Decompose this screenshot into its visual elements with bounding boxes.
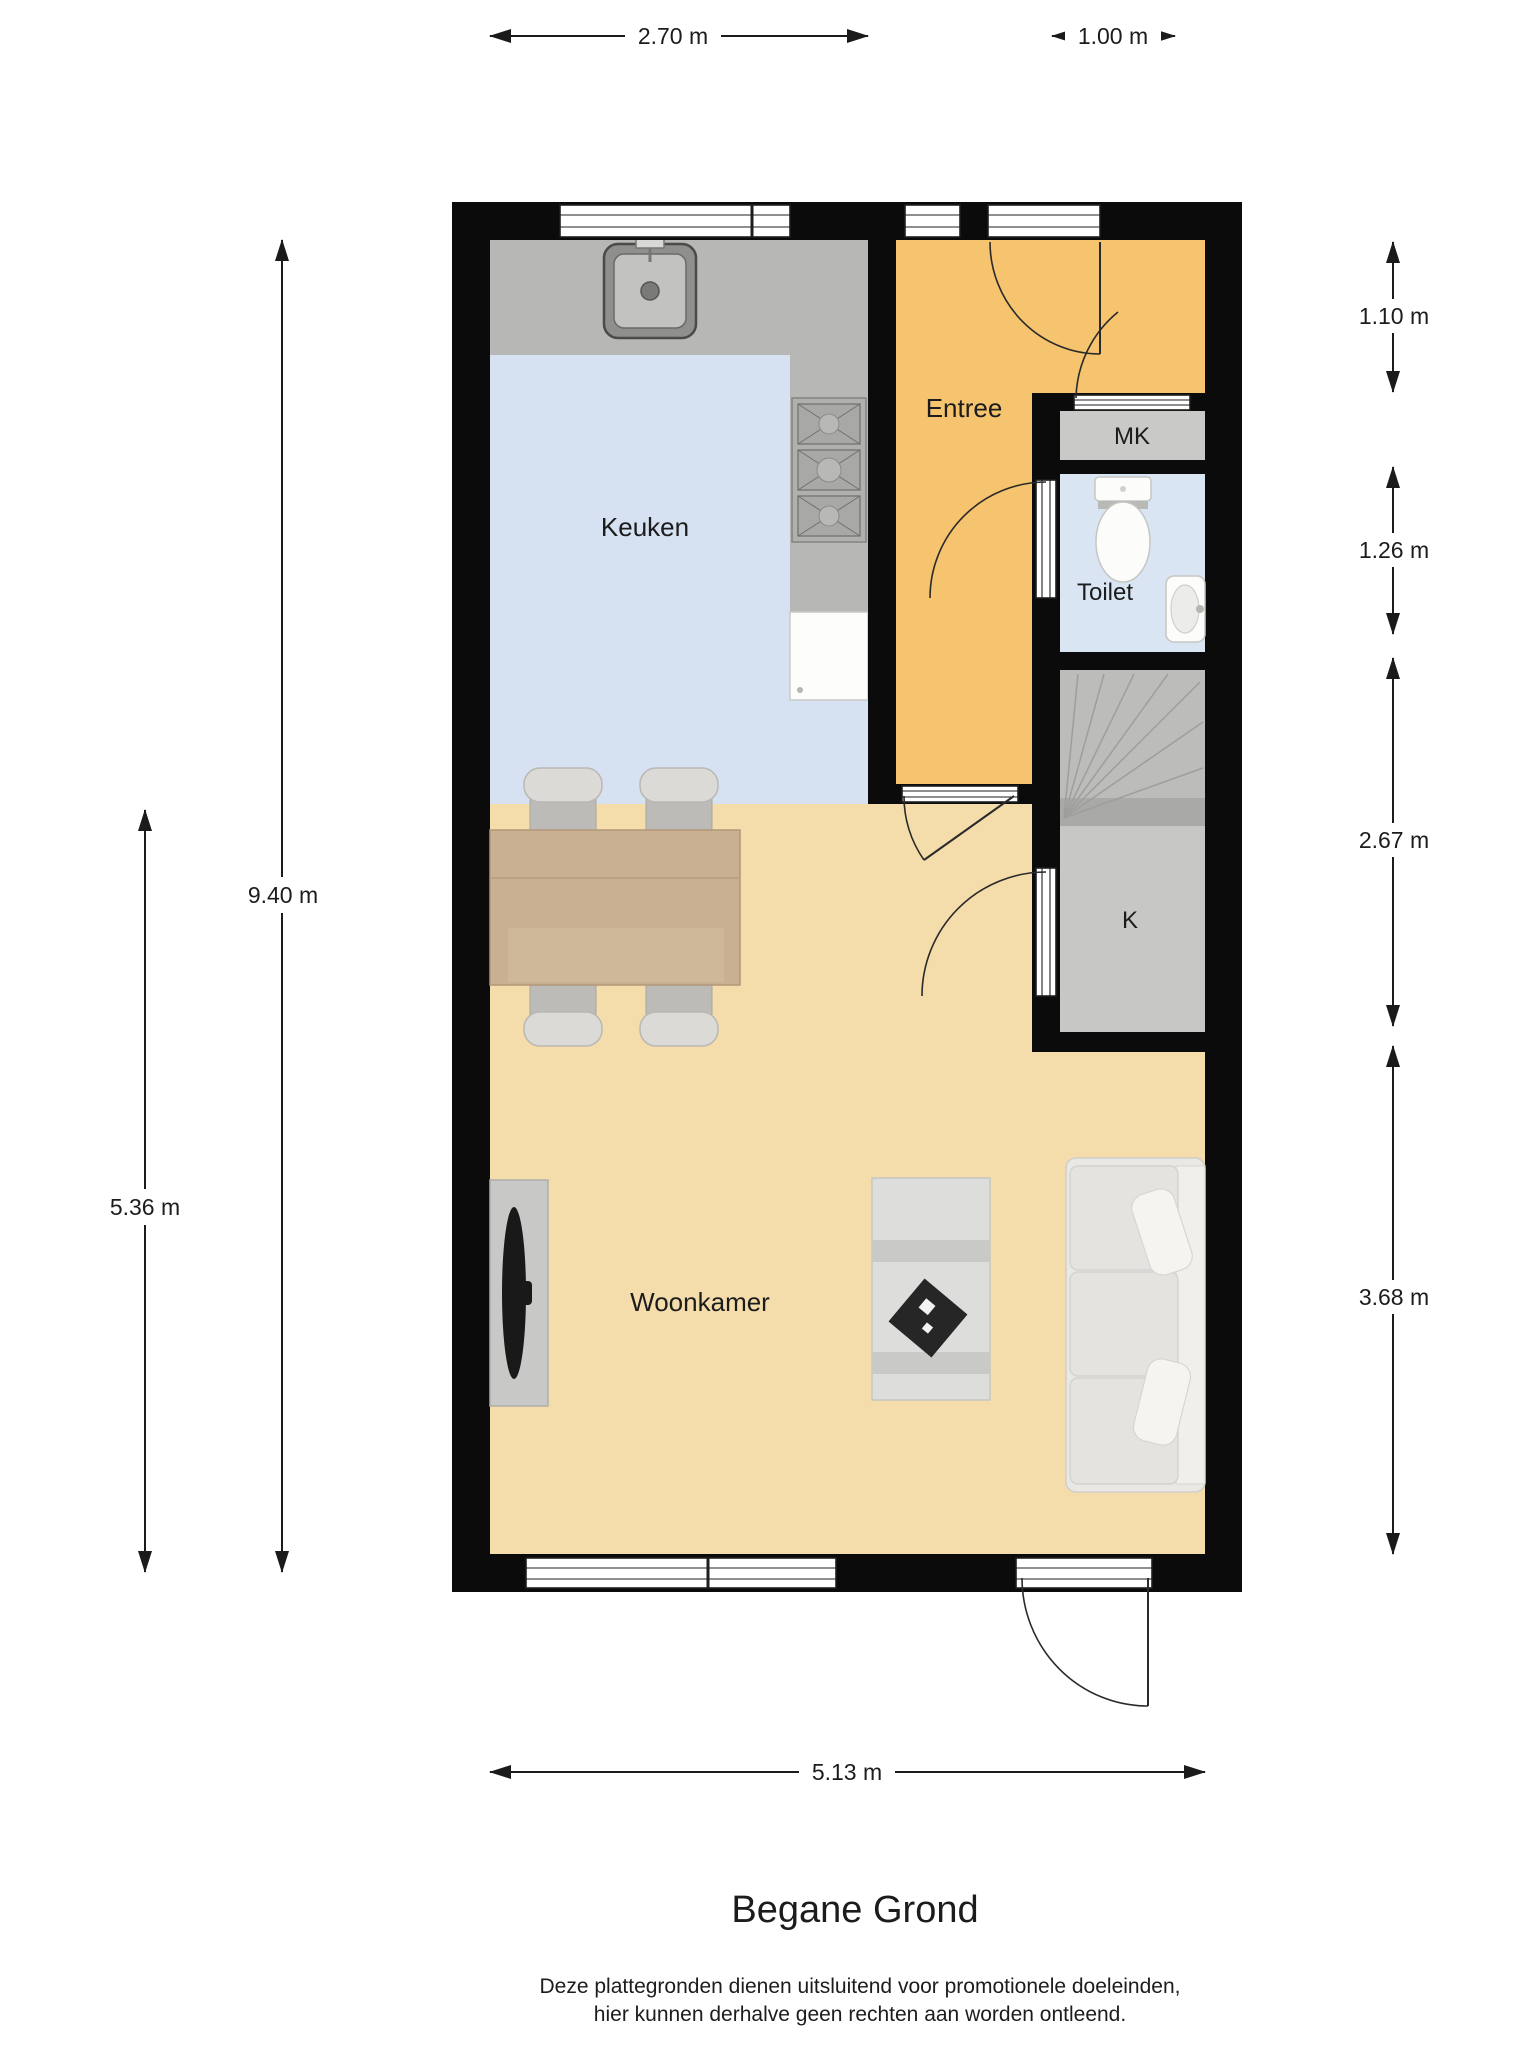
wall-mk-toilet [1060, 460, 1205, 474]
woonkamer-label: Woonkamer [630, 1287, 770, 1317]
disclaimer-line-2: hier kunnen derhalve geen rechten aan wo… [594, 2003, 1126, 2026]
dining-table [490, 830, 740, 985]
svg-text:1.10 m: 1.10 m [1359, 303, 1429, 329]
window-entree-narrow [905, 205, 960, 237]
appliance-handle-icon [797, 687, 803, 693]
wall-k-woonkamer [1032, 1032, 1205, 1052]
svg-text:1.00 m: 1.00 m [1078, 23, 1148, 49]
closet-k-label: K [1122, 907, 1138, 934]
sofa [1066, 1158, 1205, 1492]
svg-text:1.26 m: 1.26 m [1359, 537, 1429, 563]
washbasin-icon [1166, 576, 1205, 642]
toilet-fixture-icon [1095, 477, 1151, 582]
wall-kitchen-entree [868, 240, 896, 804]
page-title: Begane Grond [731, 1889, 978, 1931]
svg-text:2.67 m: 2.67 m [1359, 827, 1429, 853]
floorplan-drawing: 2.70 m 1.00 m 1.10 m 1.26 m 2.67 m 3.68 … [0, 0, 1536, 2048]
window-kitchen [560, 205, 790, 237]
dim-top-entree: 1.00 m [1052, 18, 1175, 54]
window-woonkamer-right [708, 1558, 836, 1588]
disclaimer-line-1: Deze plattegronden dienen uitsluitend vo… [540, 1975, 1181, 1998]
entree-label: Entree [926, 393, 1003, 423]
tv-sideboard [490, 1180, 548, 1406]
stove-icon [792, 398, 866, 542]
window-woonkamer-left [526, 1558, 708, 1588]
wall-left [452, 202, 490, 1592]
wall-right [1205, 202, 1242, 1592]
svg-text:3.68 m: 3.68 m [1359, 1284, 1429, 1310]
svg-text:9.40 m: 9.40 m [248, 882, 318, 908]
kitchen-sink-icon [604, 236, 696, 338]
floorplan-page: 2.70 m 1.00 m 1.10 m 1.26 m 2.67 m 3.68 … [0, 0, 1536, 2048]
kitchen-appliance [790, 612, 868, 700]
mk-label: MK [1114, 423, 1150, 450]
toilet-label: Toilet [1077, 579, 1133, 606]
wall-toilet-stairs [1032, 652, 1205, 670]
svg-text:5.13 m: 5.13 m [812, 1759, 882, 1785]
coffee-table [872, 1178, 990, 1400]
keuken-label: Keuken [601, 512, 689, 542]
svg-text:2.70 m: 2.70 m [638, 23, 708, 49]
svg-text:5.36 m: 5.36 m [110, 1194, 180, 1220]
